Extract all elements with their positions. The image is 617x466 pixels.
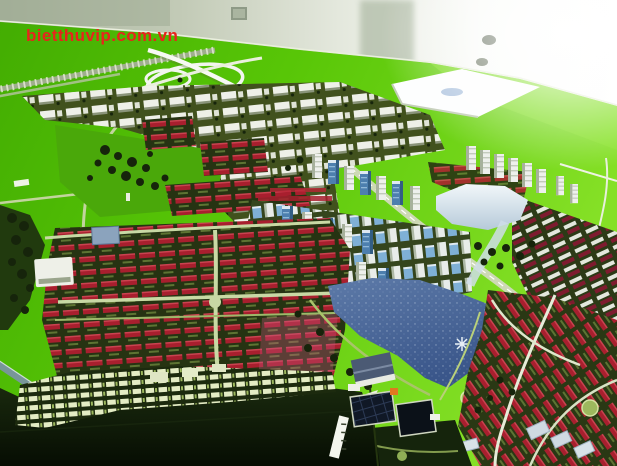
round-plaza (582, 400, 598, 416)
red-banner-row (270, 188, 326, 192)
orange-accent (390, 388, 398, 395)
roundabout (209, 296, 221, 308)
scale-model-photo: bietthuvip.com.vn (0, 0, 617, 466)
blue-roof-building (92, 226, 120, 244)
red-banner-row (258, 196, 332, 201)
watermark-text: bietthuvip.com.vn (26, 26, 178, 46)
civic-building-white (34, 257, 74, 288)
water-tower (126, 193, 130, 201)
scene-canvas (0, 0, 617, 466)
light-glow (380, 0, 617, 170)
